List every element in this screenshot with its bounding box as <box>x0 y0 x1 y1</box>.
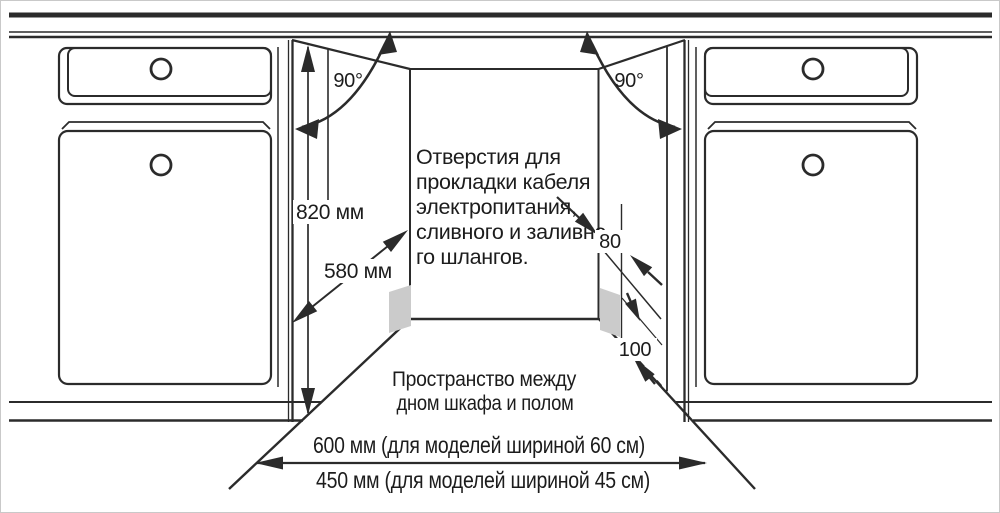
arc-right-up-arrowhead <box>580 31 599 55</box>
plinth-right <box>676 402 992 421</box>
dim-width-right-arrowhead <box>679 457 707 470</box>
arc-left-side-arrowhead <box>295 119 319 139</box>
floor-note: Пространство между дном шкафа и полом <box>392 367 576 415</box>
dim-580-label: 580 мм <box>324 260 392 283</box>
plinth-left <box>9 402 321 421</box>
floor-note-line-1: Пространство между <box>392 367 576 391</box>
left-door <box>59 131 271 384</box>
hole-dim-80-arrow-shaft <box>648 272 662 285</box>
right-door <box>705 131 917 384</box>
diagram-canvas: 90° 90° 820 мм 580 мм Отверстия для прок… <box>1 1 999 512</box>
left-door-top-bevel <box>62 122 270 129</box>
hole-dim-mid-arrowhead <box>625 299 640 321</box>
left-cabinet <box>59 40 293 422</box>
dim-width-left-arrowhead <box>255 457 283 470</box>
door-swing-arc-left: 90° <box>295 31 397 139</box>
holes-note-line-5: го шлангов. <box>416 245 528 269</box>
arc-right-side-arrowhead <box>658 119 682 139</box>
dimension-width-bottom: 600 мм (для моделей шириной 60 см) 450 м… <box>255 432 707 493</box>
hole-dim-80-label: 80 <box>599 231 621 253</box>
holes-note: Отверстия для прокладки кабеля электропи… <box>416 145 606 269</box>
dim-580-upper-arrowhead <box>383 230 408 252</box>
left-drawer-knob <box>151 59 171 79</box>
floor-note-line-2: дном шкафа и полом <box>397 391 574 415</box>
holes-note-line-4: сливного и заливно <box>416 220 606 244</box>
angle-label-left: 90° <box>333 70 362 92</box>
arc-left-up-arrowhead <box>378 31 397 55</box>
dim-width-450-label: 450 мм (для моделей шириной 45 см) <box>316 467 650 493</box>
right-door-top-bevel <box>708 122 916 129</box>
left-door-knob <box>151 155 171 175</box>
right-wall-hose-hole <box>600 288 620 337</box>
niche-right-wall-top-edge <box>599 40 686 69</box>
dim-580-lower-arrowhead <box>292 301 317 323</box>
dim-width-600-label: 600 мм (для моделей шириной 60 см) <box>313 432 645 458</box>
right-cabinet <box>685 40 918 422</box>
right-drawer-knob <box>803 59 823 79</box>
right-drawer-face <box>705 48 908 96</box>
hole-dim-100-label: 100 <box>619 339 652 361</box>
dim-820-label: 820 мм <box>296 201 364 224</box>
dim-820-top-arrowhead <box>301 45 315 72</box>
countertop <box>9 15 992 37</box>
right-door-knob <box>803 155 823 175</box>
holes-note-line-1: Отверстия для <box>416 145 561 169</box>
installation-diagram: 90° 90° 820 мм 580 мм Отверстия для прок… <box>0 0 1000 513</box>
holes-note-line-3: электропитания, <box>416 195 577 219</box>
angle-label-right: 90° <box>614 70 643 92</box>
left-wall-hose-hole <box>389 285 411 333</box>
holes-note-line-2: прокладки кабеля <box>416 170 590 194</box>
